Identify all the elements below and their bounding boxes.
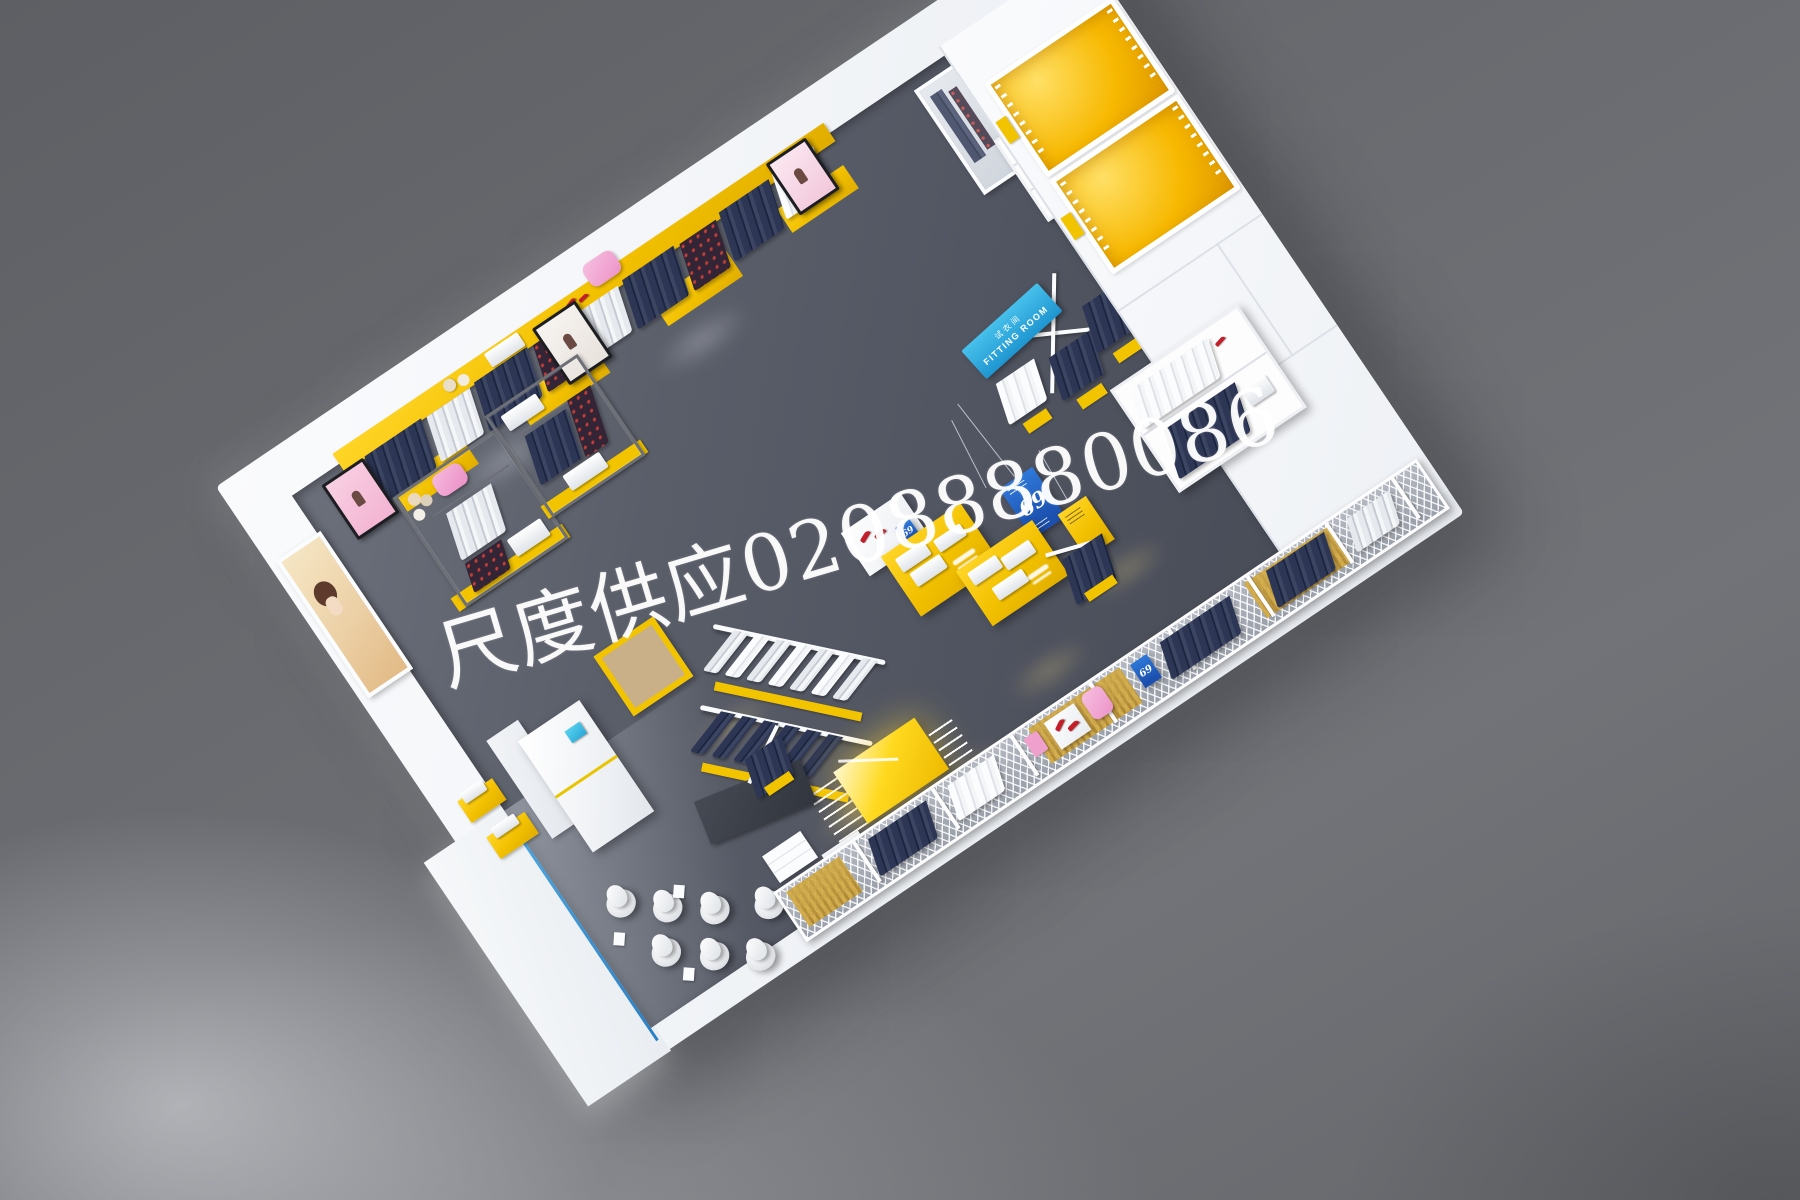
hat [411,506,428,523]
hat [418,492,435,509]
price-mark [1027,563,1050,581]
hook-strip [1106,8,1160,84]
red-heel [1067,719,1080,732]
price-placard [673,885,685,899]
store-render-scene: 试衣间 FITTING ROOM 69 69 [0,0,1800,1200]
red-heel [1055,718,1065,732]
mesh-tag-69: 69 [1130,654,1162,688]
price-placard [683,967,695,981]
red-shoe [1215,335,1226,347]
price-placard [613,932,625,946]
hook-strip [1172,105,1226,181]
poster-model-face [323,594,345,618]
folded-stack [507,518,551,557]
hanging-shirts-group [1346,490,1400,553]
register-screen [564,722,587,744]
counter-yellow-trim [555,755,618,799]
